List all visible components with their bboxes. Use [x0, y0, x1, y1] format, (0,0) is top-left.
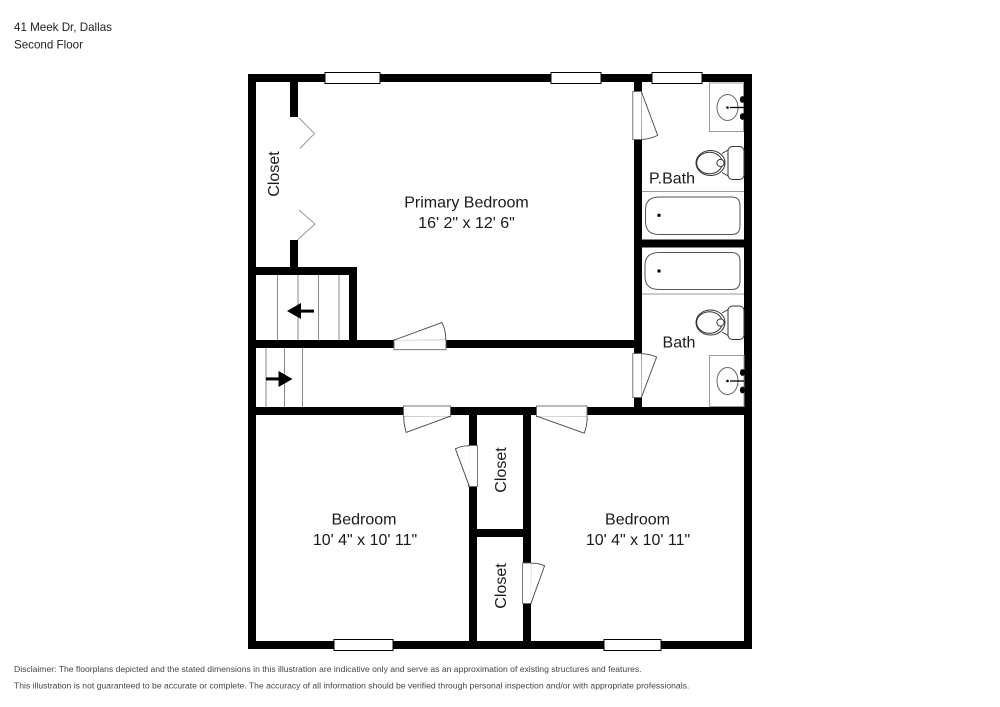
svg-text:Bedroom: Bedroom	[332, 512, 397, 529]
svg-text:P.Bath: P.Bath	[649, 171, 695, 188]
svg-text:10' 4" x 10' 11": 10' 4" x 10' 11"	[313, 532, 417, 549]
svg-text:10' 4" x 10' 11": 10' 4" x 10' 11"	[586, 532, 690, 549]
svg-text:Bedroom: Bedroom	[605, 512, 670, 529]
svg-text:Disclaimer: The floorplans dep: Disclaimer: The floorplans depicted and …	[14, 664, 642, 674]
svg-text:16' 2" x 12' 6": 16' 2" x 12' 6"	[418, 215, 515, 232]
svg-text:Closet: Closet	[266, 151, 283, 197]
svg-text:Bath: Bath	[663, 335, 696, 352]
svg-text:Primary Bedroom: Primary Bedroom	[404, 195, 528, 212]
svg-text:This illustration is not guara: This illustration is not guaranteed to b…	[14, 681, 689, 691]
svg-text:41 Meek Dr, Dallas: 41 Meek Dr, Dallas	[14, 21, 112, 34]
svg-text:Closet: Closet	[493, 563, 510, 609]
svg-text:Closet: Closet	[493, 447, 510, 493]
svg-text:Second Floor: Second Floor	[14, 39, 83, 52]
